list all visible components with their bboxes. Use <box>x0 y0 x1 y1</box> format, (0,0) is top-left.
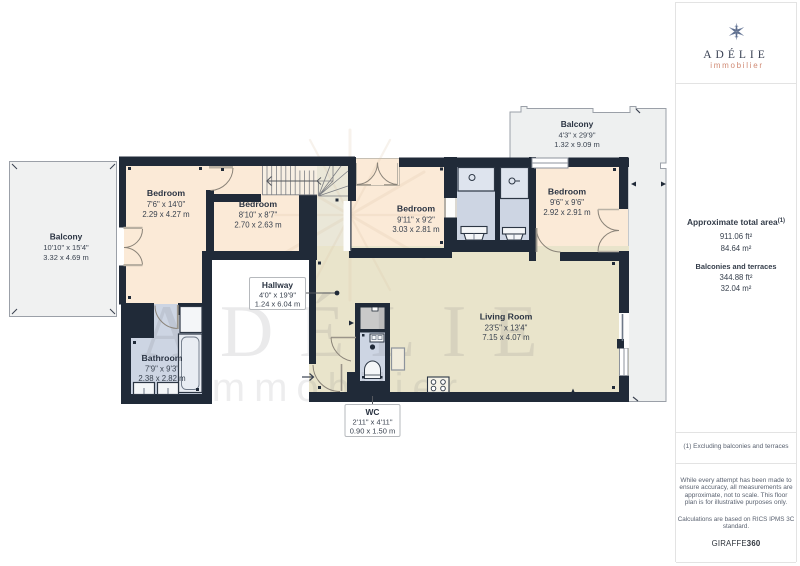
svg-text:7.15 x 4.07 m: 7.15 x 4.07 m <box>482 333 529 342</box>
svg-text:2.92 x 2.91 m: 2.92 x 2.91 m <box>543 208 590 217</box>
svg-text:7'6" x 14'0": 7'6" x 14'0" <box>147 200 186 209</box>
svg-text:7'9" x 9'3": 7'9" x 9'3" <box>145 365 179 374</box>
svg-text:Balcony: Balcony <box>50 232 83 242</box>
svg-text:4'3" x 29'9": 4'3" x 29'9" <box>559 131 596 140</box>
svg-text:WC: WC <box>366 407 380 417</box>
svg-text:10'10" x 15'4": 10'10" x 15'4" <box>43 243 89 252</box>
svg-text:Living Room: Living Room <box>480 312 533 322</box>
svg-text:Bedroom: Bedroom <box>239 199 277 209</box>
svg-text:Bathroom: Bathroom <box>141 353 182 363</box>
svg-text:0.90 x 1.50 m: 0.90 x 1.50 m <box>350 427 395 436</box>
svg-text:Balcony: Balcony <box>561 119 594 129</box>
svg-text:Bedroom: Bedroom <box>397 204 435 214</box>
svg-text:2.29 x 4.27 m: 2.29 x 4.27 m <box>142 210 189 219</box>
svg-text:2.70 x 2.63 m: 2.70 x 2.63 m <box>234 221 281 230</box>
svg-text:23'5" x 13'4": 23'5" x 13'4" <box>485 324 528 333</box>
svg-text:8'10" x 8'7": 8'10" x 8'7" <box>239 211 278 220</box>
svg-text:Bedroom: Bedroom <box>548 187 586 197</box>
svg-text:Bedroom: Bedroom <box>147 188 185 198</box>
svg-text:9'11" x 9'2": 9'11" x 9'2" <box>397 216 435 225</box>
svg-text:3.32 x 4.69 m: 3.32 x 4.69 m <box>43 253 88 262</box>
svg-text:3.03 x 2.81 m: 3.03 x 2.81 m <box>392 225 439 234</box>
svg-text:1.32 x 9.09 m: 1.32 x 9.09 m <box>554 140 599 149</box>
svg-text:1.24 x 6.04 m: 1.24 x 6.04 m <box>255 300 300 309</box>
svg-text:9'6" x 9'6": 9'6" x 9'6" <box>550 198 584 207</box>
svg-text:2'11" x 4'11": 2'11" x 4'11" <box>352 418 392 427</box>
svg-text:4'0" x 19'9": 4'0" x 19'9" <box>259 291 296 300</box>
svg-text:immobilier: immobilier <box>194 366 466 410</box>
svg-text:2.38 x 2.82 m: 2.38 x 2.82 m <box>138 374 185 383</box>
svg-text:Hallway: Hallway <box>262 280 294 290</box>
